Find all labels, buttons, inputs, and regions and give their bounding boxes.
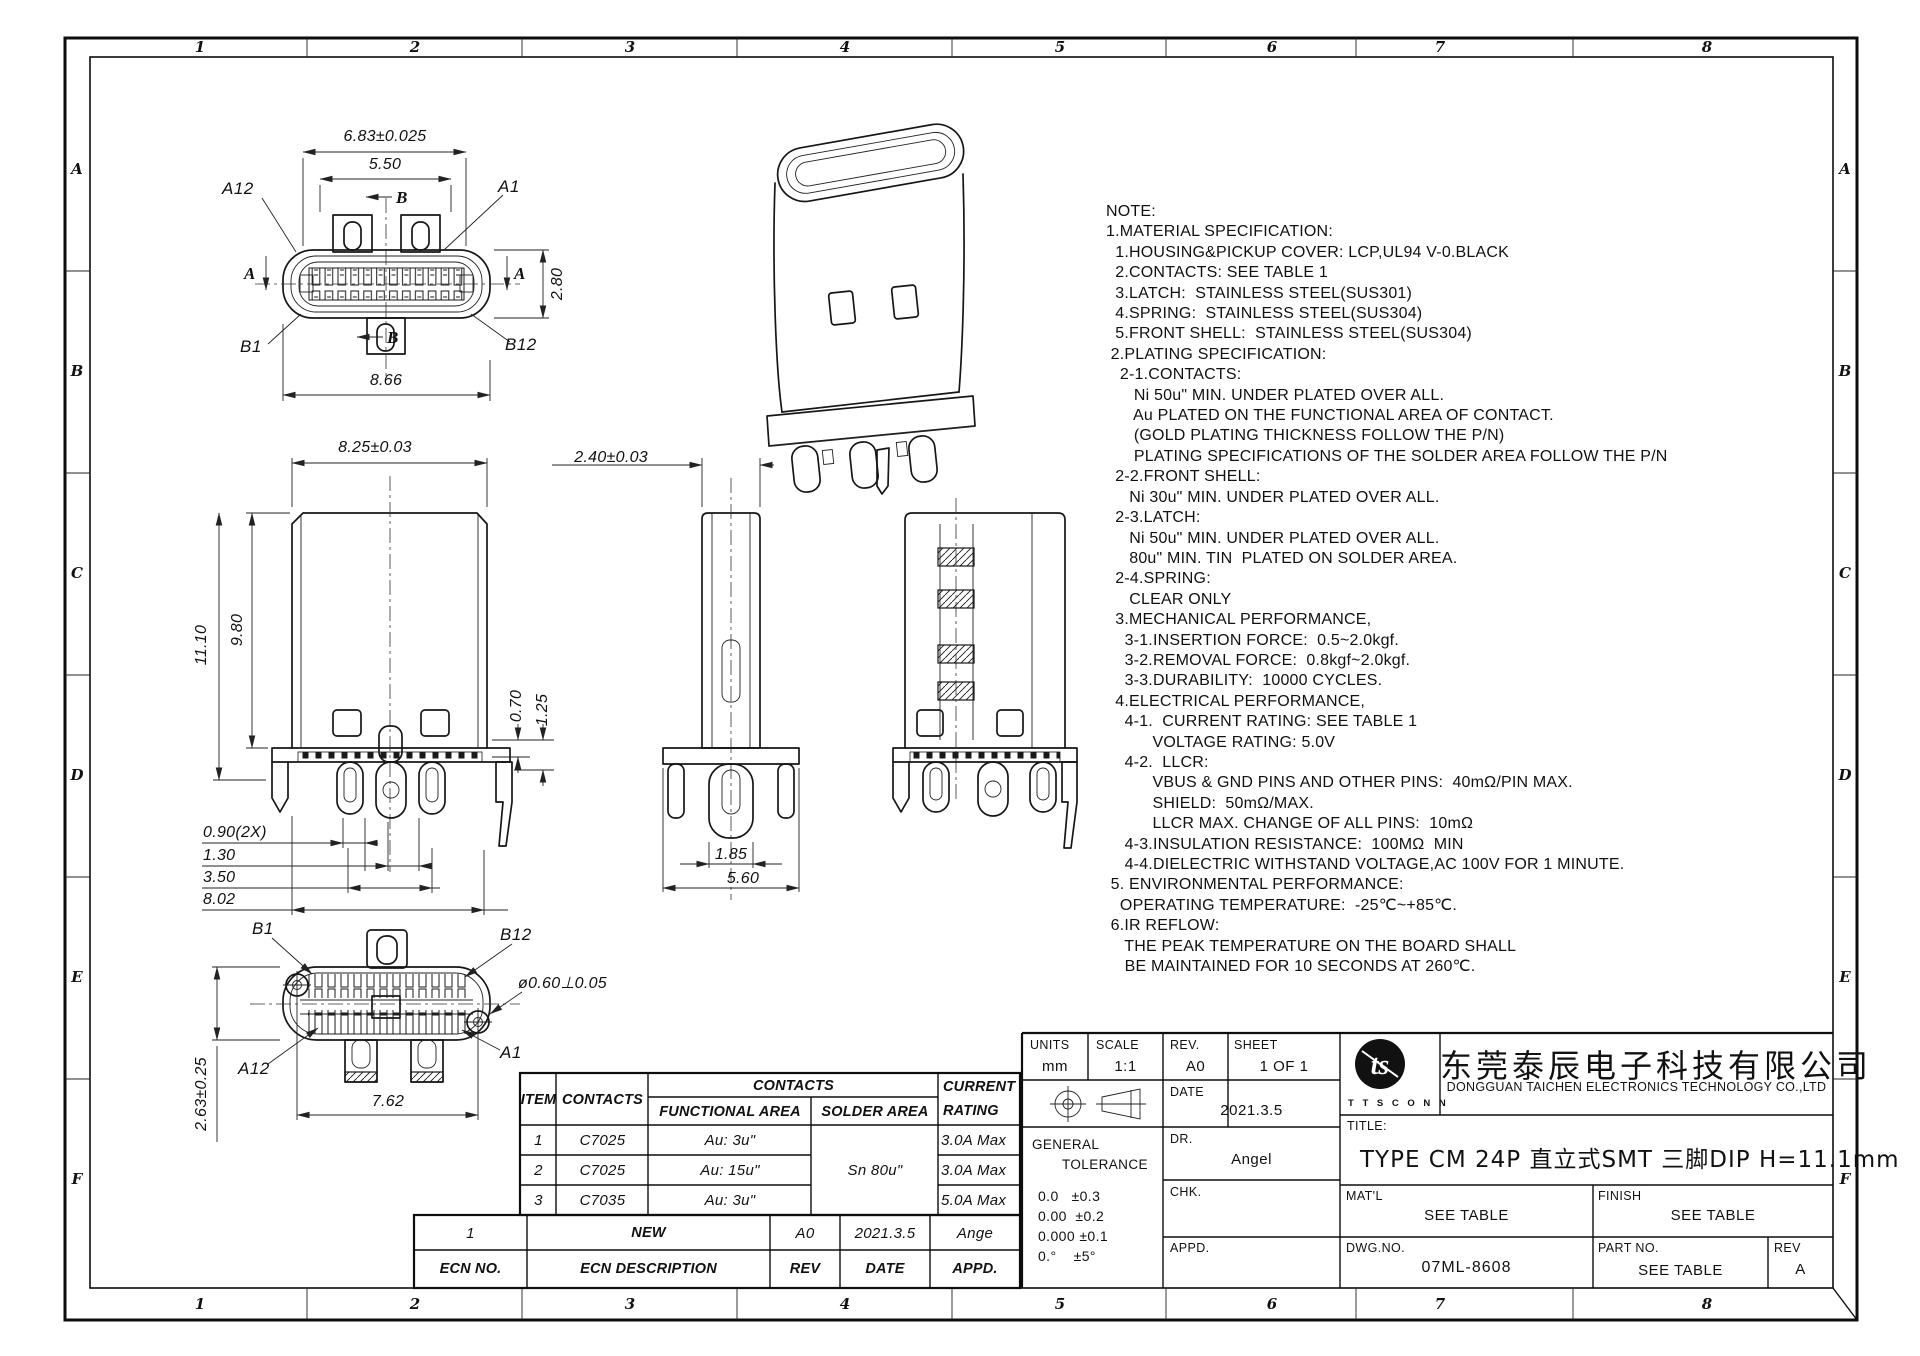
sheet-label: SHEET bbox=[1234, 1039, 1278, 1052]
ecn-row-no: 1 bbox=[414, 1226, 527, 1241]
pin-label-b1-top: B1 bbox=[240, 338, 262, 355]
contacts-r2-item: 2 bbox=[520, 1163, 557, 1178]
chk-label: CHK. bbox=[1170, 1186, 1201, 1199]
zone-col-top-2: 2 bbox=[400, 40, 430, 55]
zone-row-left-b: B bbox=[62, 364, 92, 379]
general-tolerance-label-1: GENERAL bbox=[1032, 1138, 1099, 1152]
general-tolerance-label-2: TOLERANCE bbox=[1062, 1158, 1148, 1172]
ecn-row-rev: A0 bbox=[770, 1226, 840, 1241]
section-a-left: A bbox=[244, 265, 255, 282]
text-line: THE PEAK TEMPERATURE ON THE BOARD SHALL bbox=[1106, 937, 1668, 957]
zone-row-right-e: E bbox=[1830, 970, 1860, 985]
title-label: TITLE: bbox=[1347, 1120, 1387, 1133]
text-line: OPERATING TEMPERATURE: -25℃~+85℃. bbox=[1106, 896, 1668, 916]
partno-label: PART NO. bbox=[1598, 1242, 1659, 1255]
text-line: 4-2. LLCR: bbox=[1106, 753, 1668, 773]
text-line: 5. ENVIRONMENTAL PERFORMANCE: bbox=[1106, 875, 1668, 895]
text-line: VBUS & GND PINS AND OTHER PINS: 40mΩ/PIN… bbox=[1106, 773, 1668, 793]
pin-label-a12-top: A12 bbox=[222, 180, 254, 197]
text-line: SHIELD: 50mΩ/MAX. bbox=[1106, 794, 1668, 814]
finish-label: FINISH bbox=[1598, 1190, 1641, 1203]
rev2-label: REV bbox=[1774, 1242, 1801, 1255]
text-line: 3.MECHANICAL PERFORMANCE, bbox=[1106, 610, 1668, 630]
section-b-top: B bbox=[396, 189, 407, 206]
text-line: 3-3.DURABILITY: 10000 CYCLES. bbox=[1106, 671, 1668, 691]
section-a-right: A bbox=[514, 265, 525, 282]
units-label: UNITS bbox=[1030, 1039, 1070, 1052]
dim-front-pitch1: 0.90(2X) bbox=[203, 825, 267, 841]
text-line: 2-1.CONTACTS: bbox=[1106, 365, 1668, 385]
zone-row-left-c: C bbox=[62, 566, 92, 581]
appd-label: APPD. bbox=[1170, 1242, 1210, 1255]
text-line: (GOLD PLATING THICKNESS FOLLOW THE P/N) bbox=[1106, 426, 1668, 446]
text-line: VOLTAGE RATING: 5.0V bbox=[1106, 733, 1668, 753]
zone-col-bottom-3: 3 bbox=[615, 1297, 645, 1312]
zone-col-top-5: 5 bbox=[1045, 40, 1075, 55]
company-logo-icon: ts bbox=[1346, 1037, 1434, 1095]
zone-row-right-c: C bbox=[1830, 566, 1860, 581]
text-line: 1.HOUSING&PICKUP COVER: LCP,UL94 V-0.BLA… bbox=[1106, 243, 1668, 263]
zone-row-right-d: D bbox=[1830, 768, 1860, 783]
contacts-r3-current: 5.0A Max bbox=[941, 1193, 1006, 1208]
zone-col-bottom-1: 1 bbox=[185, 1297, 215, 1312]
text-line: 2-2.FRONT SHELL: bbox=[1106, 467, 1668, 487]
zone-row-left-d: D bbox=[62, 768, 92, 783]
text-line: CLEAR ONLY bbox=[1106, 590, 1668, 610]
zone-col-top-4: 4 bbox=[830, 40, 860, 55]
text-line: Ni 50u" MIN. UNDER PLATED OVER ALL. bbox=[1106, 529, 1668, 549]
dim-top-outer-width: 6.83±0.025 bbox=[320, 129, 450, 145]
dim-top-tongue-width: 5.50 bbox=[350, 157, 420, 173]
dim-front-total-height: 11.10 bbox=[194, 615, 210, 675]
zone-row-right-b: B bbox=[1830, 364, 1860, 379]
pin-label-a12-bottom: A12 bbox=[238, 1060, 270, 1077]
ecn-row-date: 2021.3.5 bbox=[840, 1226, 930, 1241]
title-value: TYPE CM 24P 直立式SMT 三脚DIP H=11.1mm bbox=[1360, 1140, 1900, 1174]
front-view bbox=[202, 458, 554, 915]
logo-subtext: T T S C O N N bbox=[1348, 1098, 1449, 1109]
zone-col-top-8: 8 bbox=[1692, 40, 1722, 55]
bottom-view bbox=[212, 930, 522, 1142]
text-line: 1.MATERIAL SPECIFICATION: bbox=[1106, 222, 1668, 242]
contacts-r1-current: 3.0A Max bbox=[941, 1133, 1006, 1148]
dim-bottom-hole: ø0.60⊥0.05 bbox=[518, 976, 607, 992]
iso-view bbox=[767, 120, 975, 494]
dim-side-tail: 1.85 bbox=[700, 847, 762, 863]
ecn-row-desc: NEW bbox=[527, 1226, 770, 1241]
contacts-col-contacts: CONTACTS bbox=[557, 1093, 648, 1108]
ecn-header-appd: APPD. bbox=[930, 1262, 1020, 1277]
text-line: 4.ELECTRICAL PERFORMANCE, bbox=[1106, 692, 1668, 712]
company-name-en: DONGGUAN TAICHEN ELECTRONICS TECHNOLOGY … bbox=[1440, 1080, 1833, 1094]
notes-block: NOTE:1.MATERIAL SPECIFICATION: 1.HOUSING… bbox=[1106, 202, 1668, 977]
contacts-col-solder: SOLDER AREA bbox=[812, 1105, 938, 1120]
contacts-r2-current: 3.0A Max bbox=[941, 1163, 1006, 1178]
side-view bbox=[552, 458, 799, 900]
zone-row-right-f: F bbox=[1830, 1172, 1860, 1187]
text-line: 3-1.INSERTION FORCE: 0.5~2.0kgf. bbox=[1106, 631, 1668, 651]
dim-front-pitch3: 3.50 bbox=[203, 870, 235, 886]
text-line: 2-4.SPRING: bbox=[1106, 569, 1668, 589]
dim-bottom-height: 2.63±0.25 bbox=[194, 1044, 210, 1144]
contacts-r3-contacts: C7035 bbox=[557, 1193, 648, 1208]
text-line: 4-3.INSULATION RESISTANCE: 100MΩ MIN bbox=[1106, 835, 1668, 855]
zone-row-right-a: A bbox=[1830, 162, 1860, 177]
text-line: 0.000 ±0.1 bbox=[1038, 1226, 1108, 1246]
matl-label: MAT'L bbox=[1346, 1190, 1383, 1203]
text-line: 0.0 ±0.3 bbox=[1038, 1186, 1108, 1206]
section-b-bottom: B bbox=[387, 329, 398, 346]
text-line: 0.00 ±0.2 bbox=[1038, 1206, 1108, 1226]
text-line: 4.SPRING: STAINLESS STEEL(SUS304) bbox=[1106, 304, 1668, 324]
matl-value: SEE TABLE bbox=[1340, 1208, 1593, 1223]
units-value: mm bbox=[1022, 1059, 1088, 1074]
text-line: NOTE: bbox=[1106, 202, 1668, 222]
text-line: Ni 50u" MIN. UNDER PLATED OVER ALL. bbox=[1106, 386, 1668, 406]
dim-top-shell-width: 8.66 bbox=[350, 373, 422, 389]
zone-row-left-a: A bbox=[62, 162, 92, 177]
text-line: 80u" MIN. TIN PLATED ON SOLDER AREA. bbox=[1106, 549, 1668, 569]
svg-text:ts: ts bbox=[1371, 1050, 1390, 1081]
contacts-r2-functional: Au: 15u" bbox=[649, 1163, 811, 1178]
rev-value: A0 bbox=[1163, 1059, 1228, 1074]
zone-row-left-f: F bbox=[62, 1172, 92, 1187]
dim-bottom-span: 7.62 bbox=[352, 1094, 424, 1110]
text-line: 2.CONTACTS: SEE TABLE 1 bbox=[1106, 263, 1668, 283]
ecn-header-rev: REV bbox=[770, 1262, 840, 1277]
zone-col-bottom-2: 2 bbox=[400, 1297, 430, 1312]
dim-front-span: 8.02 bbox=[203, 892, 235, 908]
zone-col-bottom-8: 8 bbox=[1692, 1297, 1722, 1312]
zone-col-bottom-5: 5 bbox=[1045, 1297, 1075, 1312]
pin-label-b12-bottom: B12 bbox=[500, 926, 532, 943]
contacts-col-current-1: CURRENT bbox=[943, 1080, 1015, 1095]
pin-label-a1-top: A1 bbox=[498, 178, 520, 195]
pin-label-b12-top: B12 bbox=[505, 336, 537, 353]
contacts-r3-item: 3 bbox=[520, 1193, 557, 1208]
text-line: 6.IR REFLOW: bbox=[1106, 916, 1668, 936]
finish-value: SEE TABLE bbox=[1593, 1208, 1833, 1223]
text-line: 2.PLATING SPECIFICATION: bbox=[1106, 345, 1668, 365]
contacts-r1-contacts: C7025 bbox=[557, 1133, 648, 1148]
text-line: 3.LATCH: STAINLESS STEEL(SUS301) bbox=[1106, 284, 1668, 304]
date-value: 2021.3.5 bbox=[1163, 1103, 1340, 1118]
dim-top-height: 2.80 bbox=[550, 258, 566, 310]
dr-value: Angel bbox=[1163, 1152, 1340, 1167]
contacts-r1-functional: Au: 3u" bbox=[649, 1133, 811, 1148]
partno-value: SEE TABLE bbox=[1593, 1263, 1768, 1278]
contacts-group-header: CONTACTS bbox=[649, 1079, 938, 1094]
dr-label: DR. bbox=[1170, 1133, 1193, 1146]
date-label: DATE bbox=[1170, 1086, 1204, 1099]
text-line: Ni 30u" MIN. UNDER PLATED OVER ALL. bbox=[1106, 488, 1668, 508]
ecn-row-appd: Ange bbox=[930, 1226, 1020, 1241]
text-line: PLATING SPECIFICATIONS OF THE SOLDER ARE… bbox=[1106, 447, 1668, 467]
drawing-sheet: 1 2 3 4 5 6 7 8 1 2 3 4 5 6 7 8 A B C D … bbox=[0, 0, 1920, 1356]
text-line: 3-2.REMOVAL FORCE: 0.8kgf~2.0kgf. bbox=[1106, 651, 1668, 671]
text-line: BE MAINTAINED FOR 10 SECONDS AT 260℃. bbox=[1106, 957, 1668, 977]
text-line: 4-4.DIELECTRIC WITHSTAND VOLTAGE,AC 100V… bbox=[1106, 855, 1668, 875]
sheet-value: 1 OF 1 bbox=[1228, 1059, 1340, 1074]
ecn-header-desc: ECN DESCRIPTION bbox=[527, 1262, 770, 1277]
zone-col-top-1: 1 bbox=[185, 40, 215, 55]
rev-label: REV. bbox=[1170, 1039, 1200, 1052]
pin-label-b1-bottom: B1 bbox=[252, 920, 274, 937]
contacts-col-item: ITEM bbox=[520, 1093, 557, 1108]
zone-col-top-7: 7 bbox=[1425, 40, 1455, 55]
ecn-header-date: DATE bbox=[840, 1262, 930, 1277]
projection-symbol-icon bbox=[1050, 1086, 1146, 1122]
zone-row-left-e: E bbox=[62, 970, 92, 985]
contacts-solder-value: Sn 80u" bbox=[812, 1163, 938, 1178]
dim-front-pitch2: 1.30 bbox=[203, 848, 235, 864]
text-line: Au PLATED ON THE FUNCTIONAL AREA OF CONT… bbox=[1106, 406, 1668, 426]
rev2-value: A bbox=[1768, 1262, 1833, 1277]
dwgno-value: 07ML-8608 bbox=[1340, 1260, 1593, 1276]
zone-col-top-3: 3 bbox=[615, 40, 645, 55]
contacts-col-current-2: RATING bbox=[943, 1104, 999, 1119]
dim-front-pin-offset2: 1.25 bbox=[535, 687, 551, 733]
zone-col-bottom-7: 7 bbox=[1425, 1297, 1455, 1312]
text-line: 0.° ±5° bbox=[1038, 1246, 1108, 1266]
contacts-r3-functional: Au: 3u" bbox=[649, 1193, 811, 1208]
dim-front-pin-offset1: 0.70 bbox=[509, 683, 525, 729]
text-line: 5.FRONT SHELL: STAINLESS STEEL(SUS304) bbox=[1106, 324, 1668, 344]
latch-view bbox=[893, 498, 1077, 848]
tolerance-values: 0.0 ±0.30.00 ±0.20.000 ±0.10.° ±5° bbox=[1038, 1186, 1108, 1266]
pin-label-a1-bottom: A1 bbox=[500, 1044, 522, 1061]
text-line: 4-1. CURRENT RATING: SEE TABLE 1 bbox=[1106, 712, 1668, 732]
zone-col-top-6: 6 bbox=[1257, 40, 1287, 55]
dim-front-width: 8.25±0.03 bbox=[320, 440, 430, 456]
contacts-col-functional: FUNCTIONAL AREA bbox=[649, 1105, 811, 1120]
scale-label: SCALE bbox=[1096, 1039, 1139, 1052]
text-line: LLCR MAX. CHANGE OF ALL PINS: 10mΩ bbox=[1106, 814, 1668, 834]
text-line: 2-3.LATCH: bbox=[1106, 508, 1668, 528]
zone-col-bottom-6: 6 bbox=[1257, 1297, 1287, 1312]
zone-col-bottom-4: 4 bbox=[830, 1297, 860, 1312]
dim-side-width: 2.40±0.03 bbox=[548, 450, 648, 466]
ecn-header-no: ECN NO. bbox=[414, 1262, 527, 1277]
dim-front-body-height: 9.80 bbox=[230, 604, 246, 656]
dim-side-depth: 5.60 bbox=[712, 871, 774, 887]
dwgno-label: DWG.NO. bbox=[1346, 1242, 1405, 1255]
contacts-r1-item: 1 bbox=[520, 1133, 557, 1148]
scale-value: 1:1 bbox=[1088, 1059, 1163, 1074]
contacts-r2-contacts: C7025 bbox=[557, 1163, 648, 1178]
